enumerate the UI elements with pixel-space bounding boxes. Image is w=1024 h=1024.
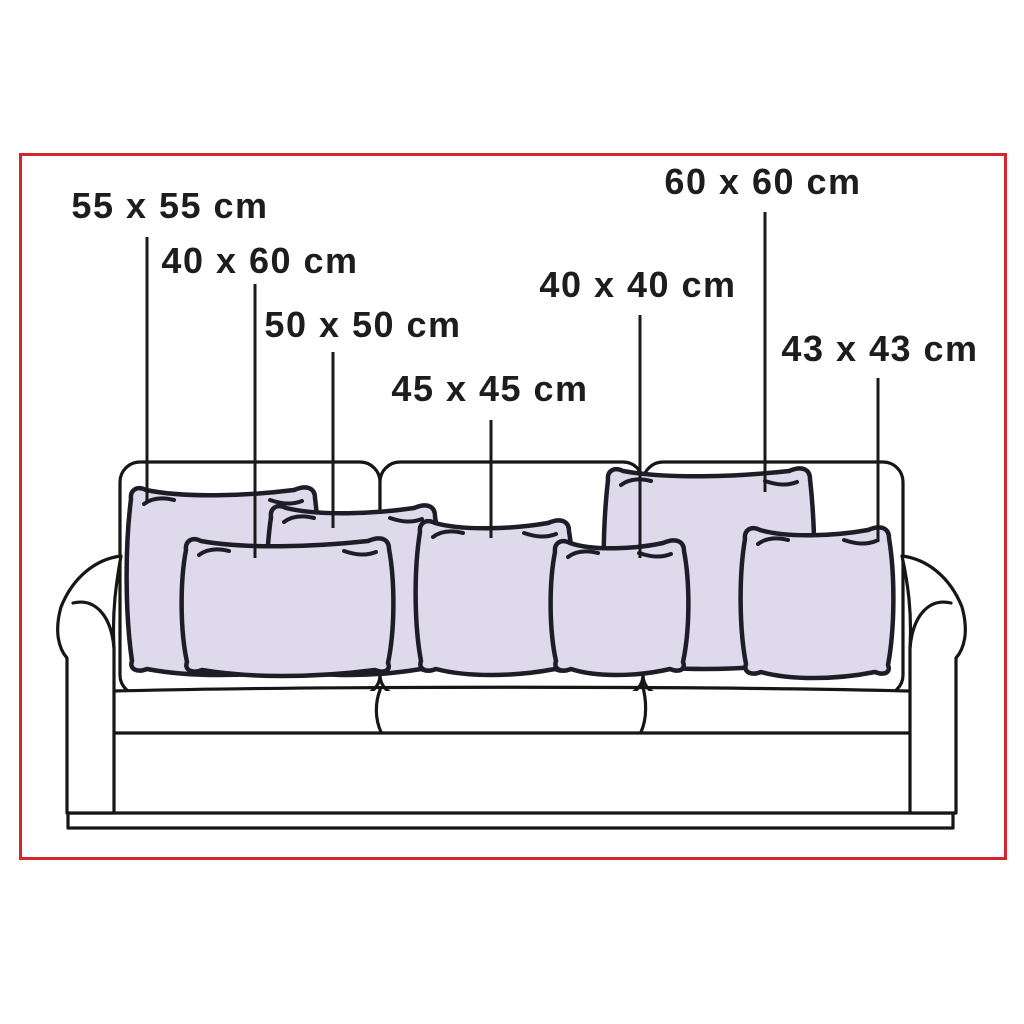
size-label-40x60: 40 x 60 cm <box>161 243 358 279</box>
right-arm <box>902 556 965 813</box>
size-label-40x40: 40 x 40 cm <box>539 267 736 303</box>
sofa-illustration <box>0 0 1024 1024</box>
sofa-plinth <box>68 813 953 828</box>
size-label-60x60: 60 x 60 cm <box>664 164 861 200</box>
size-label-55x55: 55 x 55 cm <box>71 188 268 224</box>
cushion-size-infographic: 55 x 55 cm 40 x 60 cm 50 x 50 cm 45 x 45… <box>0 0 1024 1024</box>
size-label-45x45: 45 x 45 cm <box>391 371 588 407</box>
size-label-50x50: 50 x 50 cm <box>264 307 461 343</box>
sofa-seat <box>110 684 912 813</box>
pillow-40x60 <box>182 538 394 676</box>
size-label-43x43: 43 x 43 cm <box>781 331 978 367</box>
seat-deck <box>110 691 912 813</box>
pillow-43x43 <box>741 527 894 678</box>
pillow-40x40 <box>551 540 689 675</box>
left-arm <box>58 556 121 813</box>
